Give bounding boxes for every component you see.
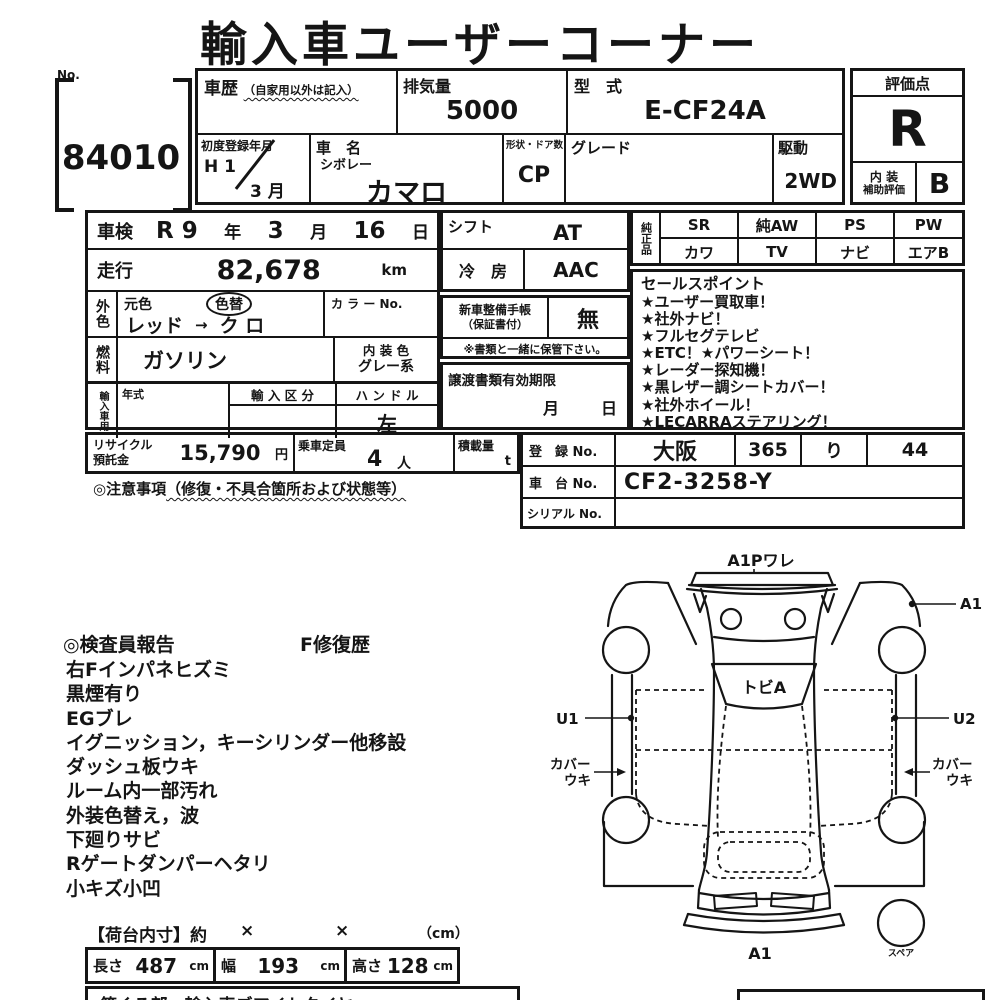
car-model: カマロ xyxy=(311,171,502,210)
capacity-unit: 人 xyxy=(397,453,411,473)
report-item: 下廻りサビ xyxy=(66,828,406,852)
service-book-label: 新車整備手帳 （保証書付） xyxy=(443,298,549,337)
car-history-cell: 車歴 （自家用以外は記入） xyxy=(198,71,398,133)
cargo-unit-note: （cm） xyxy=(418,923,469,943)
equip-cell: PS xyxy=(817,213,895,239)
mileage-row: 走行 82,678 km xyxy=(88,250,437,292)
clipped-bottom-box-right xyxy=(737,989,985,1000)
width-unit: cm xyxy=(320,959,344,973)
genuine-parts-label: 純正品 xyxy=(633,213,661,263)
plate-label: 登 録 No. xyxy=(523,435,616,465)
report-item: ダッシュ板ウキ xyxy=(66,755,406,779)
transfer-docs-box: 譲渡書類有効期限 月 日 xyxy=(440,362,630,430)
service-book-value: 無 xyxy=(549,298,627,337)
sales-points-box: セールスポイント ★ユーザー買取車！ ★社外ナビ！ ★フルセグテレビ ★ETC！… xyxy=(630,269,965,430)
sales-point: ★フルセグテレビ xyxy=(641,328,954,345)
model-code-label: 型 式 xyxy=(574,73,622,97)
report-item: 黒煙有り xyxy=(66,682,406,706)
body-shape-label: 形状・ドア数 xyxy=(506,137,563,151)
diagram-label-cover-left: カバー xyxy=(550,757,591,773)
plate-class: 365 xyxy=(736,435,802,465)
interior-color-label: 内 装 色 xyxy=(363,343,409,359)
load-label: 積載量 xyxy=(458,437,494,454)
serial-label: シリアル No. xyxy=(523,499,616,527)
width-value: 193 xyxy=(236,954,320,978)
equip-cell: TV xyxy=(739,239,817,265)
interior-color-cell: 内 装 色 グレー系 xyxy=(335,338,437,381)
fuel-label: 燃料 xyxy=(88,338,118,381)
capacity-label: 乗車定員 xyxy=(298,437,346,454)
service-book-box: 新車整備手帳 （保証書付） 無 ※書類と一緒に保管下さい。 xyxy=(440,295,630,359)
body-shape-value: CP xyxy=(504,163,564,188)
import-class-label: 輸 入 区 分 xyxy=(230,384,335,406)
shaken-row: 車検 R 9 年 3 月 16 日 xyxy=(88,213,437,250)
shift-label: シフト xyxy=(448,216,493,237)
equip-cell: PW xyxy=(895,213,962,239)
header-table: 車歴 （自家用以外は記入） 排気量 5000 型 式 E-CF24A 初度登録年… xyxy=(195,68,845,205)
sales-point: ★LECARRAステアリング！ xyxy=(641,414,954,431)
score-box: 評価点 R 内 装 補助評価 B xyxy=(850,68,965,205)
fuel-value: ガソリン xyxy=(118,338,335,381)
genuine-parts-table: 純正品 SR 純AW PS PW カワ TV ナビ エアB xyxy=(630,210,965,266)
fuel-row: 燃料 ガソリン 内 装 色 グレー系 xyxy=(88,338,437,384)
diagram-label-rear-glass: A1Pワレ xyxy=(727,552,794,570)
length-label: 長さ xyxy=(88,955,123,976)
repair-history: F修復歴 xyxy=(300,630,370,657)
equip-cell: エアB xyxy=(895,239,962,265)
arrow-icon: → xyxy=(195,316,208,334)
times-sign: × xyxy=(335,921,349,941)
handle-label: ハ ン ド ル xyxy=(337,384,437,406)
report-item: ルーム内一部汚れ xyxy=(66,779,406,803)
transfer-docs-label: 譲渡書類有効期限 xyxy=(448,369,556,389)
height-value: 128 xyxy=(382,954,433,978)
clipped-bottom-text: 第くる部・輸入車ズアイトタイヤ xyxy=(88,989,517,1000)
serial-row: シリアル No. xyxy=(523,499,962,527)
cargo-title-row: 【荷台内寸】約 × × （cm） xyxy=(88,921,478,945)
inspector-report-title: ◎検査員報告 xyxy=(63,630,175,657)
color-change-value: レッド → ク ロ xyxy=(126,311,316,338)
report-item: EGブレ xyxy=(66,707,406,731)
inspector-report-items: 右Fインパネヒズミ 黒煙有り EGブレ イグニッション，キーシリンダー他移設 ダ… xyxy=(66,658,406,901)
mileage-value: 82,678 xyxy=(156,255,381,286)
grade-cell: グレード xyxy=(566,135,774,204)
interior-score-label: 内 装 補助評価 xyxy=(853,163,917,204)
mileage-label: 走行 xyxy=(88,257,156,283)
recycle-value: 15,790 xyxy=(165,441,275,465)
car-name-cell: 車 名 シボレー カマロ xyxy=(311,135,504,204)
report-item: イグニッション，キーシリンダー他移設 xyxy=(66,731,406,755)
grade-label: グレード xyxy=(571,137,631,158)
shift-row: シフト AT xyxy=(443,213,627,250)
equip-cell: SR xyxy=(661,213,739,239)
score-value: R xyxy=(853,97,962,163)
auction-sheet: 輸入車ユーザーコーナー No. 84010 車歴 （自家用以外は記入） 排気量 … xyxy=(0,0,1000,1000)
diagram-label-u2: U2 xyxy=(953,710,976,728)
model-code-cell: 型 式 E-CF24A xyxy=(568,71,842,133)
report-item: 右Fインパネヒズミ xyxy=(66,658,406,682)
import-row: 輸入車用 年式 輸 入 区 分 ハ ン ド ル 左 xyxy=(88,384,437,438)
exterior-color-label: 外色 xyxy=(88,292,118,336)
color-cell: 元色 色替 レッド → ク ロ xyxy=(118,292,325,336)
color-no-label: カ ラ ー No. xyxy=(331,295,402,312)
width-label: 幅 xyxy=(216,955,236,976)
diagram-label-spare: スペア xyxy=(888,948,914,959)
length-value: 487 xyxy=(123,954,189,978)
main-left-table: 車検 R 9 年 3 月 16 日 走行 82,678 km 外色 元色 色替 … xyxy=(85,210,440,430)
recycle-strip: リサイクル 預託金 15,790 円 乗車定員 4 人 積載量 t xyxy=(85,432,520,474)
shift-aircon-box: シフト AT 冷 房 AAC xyxy=(440,210,630,292)
interior-score-value: B xyxy=(917,163,962,204)
capacity-value: 4 xyxy=(367,447,382,472)
displacement-cell: 排気量 5000 xyxy=(398,71,568,133)
shaken-label: 車検 xyxy=(88,218,156,244)
chassis-label: 車 台 No. xyxy=(523,467,616,497)
car-history-note: （自家用以外は記入） xyxy=(244,83,359,97)
plate-row: 登 録 No. 大阪 365 り 44 xyxy=(523,435,962,467)
diagram-label-a1-right: A1 xyxy=(960,595,982,613)
aircon-row: 冷 房 AAC xyxy=(443,250,627,289)
aircon-label: 冷 房 xyxy=(443,250,525,289)
model-year-label: 年式 xyxy=(122,386,144,402)
plate-area: 大阪 xyxy=(616,435,736,465)
sales-point: ★レーダー探知機！ xyxy=(641,362,954,379)
drive-label: 駆動 xyxy=(778,137,808,158)
car-history-label: 車歴 xyxy=(204,79,238,99)
chassis-value: CF2-3258-Y xyxy=(616,467,962,497)
transfer-month: 月 xyxy=(543,395,559,419)
score-label: 評価点 xyxy=(853,71,962,97)
plate-number: 44 xyxy=(868,435,962,465)
shift-value: AT xyxy=(553,221,582,245)
svg-text:ウキ: ウキ xyxy=(564,773,591,789)
sales-point: ★社外ホイール！ xyxy=(641,397,954,414)
model-code-value: E-CF24A xyxy=(568,96,842,126)
diagram-label-a1-front: A1 xyxy=(748,944,772,963)
sales-point: ★社外ナビ！ xyxy=(641,311,954,328)
height-label: 高さ xyxy=(347,955,382,976)
diagram-label-cover-right: カバー xyxy=(932,757,973,773)
clipped-bottom-box: 第くる部・輸入車ズアイトタイヤ xyxy=(85,986,520,1000)
report-item: 小キズ小凹 xyxy=(66,877,406,901)
report-item: 外装色替え，波 xyxy=(66,804,406,828)
height-cell: 高さ 128 cm xyxy=(347,950,457,981)
diagram-label-windshield: トビA xyxy=(742,678,787,697)
drive-value: 2WD xyxy=(784,169,837,193)
equip-cell: カワ xyxy=(661,239,739,265)
model-year-cell: 年式 xyxy=(118,384,230,438)
drive-cell: 駆動 2WD xyxy=(774,135,842,204)
first-registration-year: H 1 xyxy=(204,157,236,177)
import-class-cell: 輸 入 区 分 xyxy=(230,384,337,438)
caution-line: ◎注意事項（修復・不具合箇所および状態等） xyxy=(93,478,406,499)
interior-color-value: グレー系 xyxy=(358,359,414,377)
transfer-day: 日 xyxy=(601,395,617,419)
dimensions-table: 長さ 487 cm 幅 193 cm 高さ 128 cm xyxy=(85,947,460,984)
page-title: 輸入車ユーザーコーナー xyxy=(200,6,800,75)
color-row: 外色 元色 色替 レッド → ク ロ カ ラ ー No. xyxy=(88,292,437,338)
width-cell: 幅 193 cm xyxy=(216,950,347,981)
sales-point: ★ETC！★パワーシート！ xyxy=(641,345,954,362)
length-unit: cm xyxy=(189,959,213,973)
svg-text:ウキ: ウキ xyxy=(946,773,973,789)
equip-cell: 純AW xyxy=(739,213,817,239)
first-registration-cell: 初度登録年月 H 1 3 月 xyxy=(198,135,311,204)
recycle-label: リサイクル xyxy=(93,438,165,453)
load-cell: 積載量 t xyxy=(455,435,517,471)
load-unit: t xyxy=(505,454,511,469)
plate-kana: り xyxy=(802,435,868,465)
sales-points-title: セールスポイント xyxy=(641,275,954,294)
length-cell: 長さ 487 cm xyxy=(88,950,216,981)
displacement-value: 5000 xyxy=(398,96,566,126)
handle-cell: ハ ン ド ル 左 xyxy=(337,384,437,438)
chassis-row: 車 台 No. CF2-3258-Y xyxy=(523,467,962,499)
first-registration-month: 3 月 xyxy=(250,177,285,202)
import-use-label: 輸入車用 xyxy=(88,384,118,438)
mileage-unit: km xyxy=(381,261,437,279)
height-unit: cm xyxy=(433,959,457,973)
recycle-cell: リサイクル 預託金 15,790 円 xyxy=(88,435,295,471)
report-item: Rゲートダンパーヘタリ xyxy=(66,852,406,876)
color-no-cell: カ ラ ー No. xyxy=(325,292,437,336)
body-shape-cell: 形状・ドア数 CP xyxy=(504,135,566,204)
sales-point: ★黒レザー調シートカバー！ xyxy=(641,379,954,396)
equip-cell: ナビ xyxy=(817,239,895,265)
diagram-label-u1: U1 xyxy=(556,710,579,728)
storage-note: ※書類と一緒に保管下さい。 xyxy=(443,339,627,358)
registration-table: 登 録 No. 大阪 365 り 44 車 台 No. CF2-3258-Y シ… xyxy=(520,432,965,529)
vehicle-damage-diagram: A1Pワレ A1 トビA U1 U2 カバー ウキ カバー ウキ A1 スペア xyxy=(528,552,1000,976)
lot-number: 84010 xyxy=(60,138,182,178)
serial-value xyxy=(616,499,962,527)
capacity-cell: 乗車定員 4 人 xyxy=(295,435,455,471)
cargo-title: 【荷台内寸】約 xyxy=(88,921,207,946)
aircon-value: AAC xyxy=(525,250,627,289)
times-sign: × xyxy=(240,921,254,941)
recycle-unit: 円 xyxy=(275,444,293,463)
sales-point: ★ユーザー買取車！ xyxy=(641,294,954,311)
displacement-label: 排気量 xyxy=(403,73,451,97)
service-book-row: 新車整備手帳 （保証書付） 無 xyxy=(443,298,627,339)
